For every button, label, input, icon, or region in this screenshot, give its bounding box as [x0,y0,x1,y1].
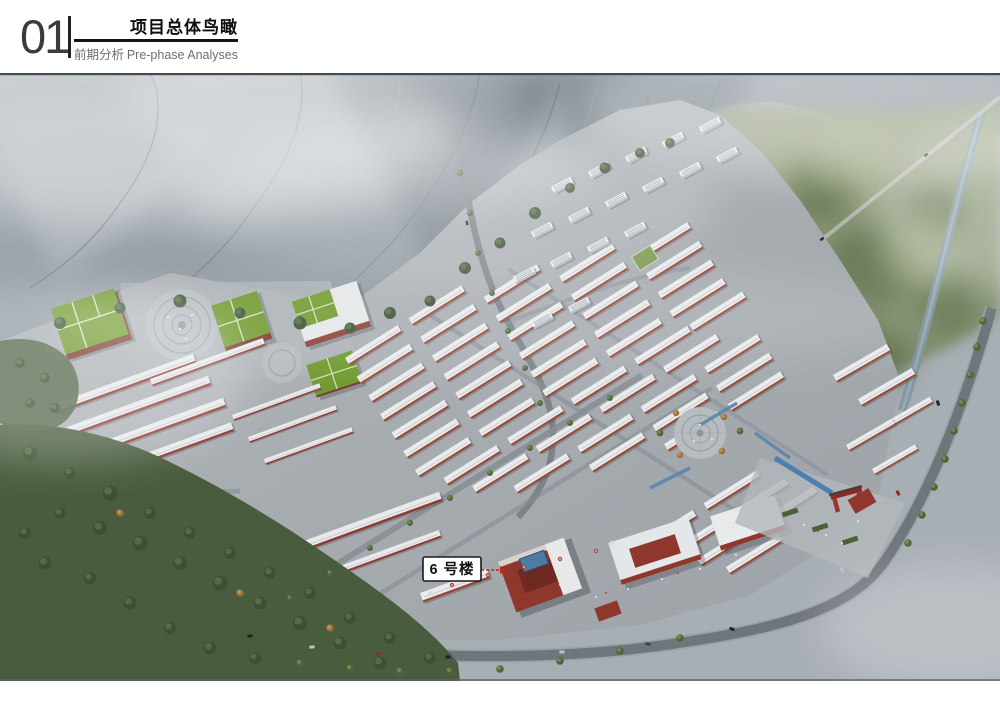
aerial-rendering: 6 号楼 [0,73,1000,681]
title-underline [74,39,238,42]
image-top-border [0,73,1000,75]
subtitle-en: Pre-phase Analyses [127,48,238,62]
slide-title: 项目总体鸟瞰 [74,17,238,38]
slide-subtitle: 前期分析 Pre-phase Analyses [74,44,238,63]
subtitle-zh: 前期分析 [74,44,124,63]
aerial-view-svg: 6 号楼 [0,73,1000,681]
header-divider [68,16,71,58]
label-text: 6 号楼 [429,560,474,578]
slide-page: 01 项目总体鸟瞰 前期分析 Pre-phase Analyses [0,0,1000,707]
image-bottom-border [0,679,1000,681]
section-number: 01 [20,13,68,60]
header-title-block: 项目总体鸟瞰 前期分析 Pre-phase Analyses [74,17,238,63]
